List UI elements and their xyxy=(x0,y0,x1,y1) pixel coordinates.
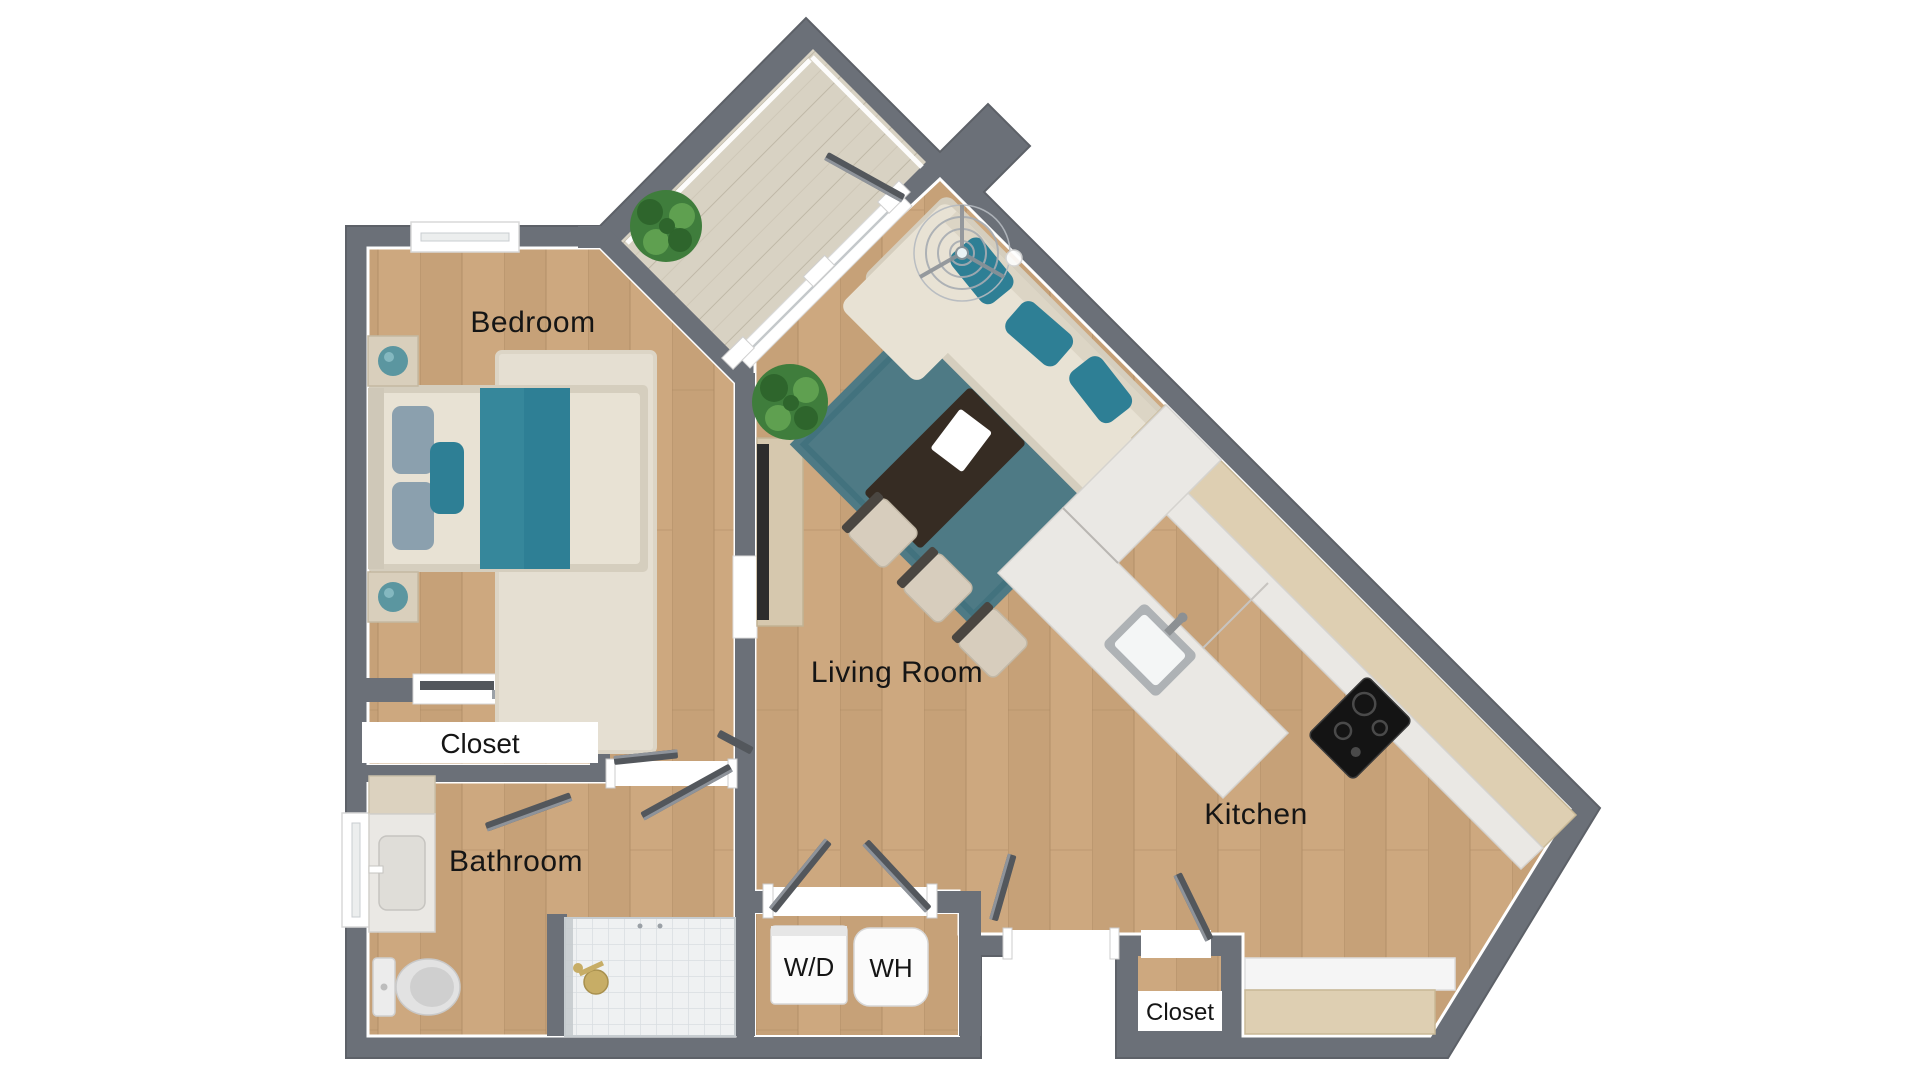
bathroom-vanity xyxy=(369,776,435,932)
tv-console xyxy=(757,438,803,626)
shower-glass xyxy=(565,918,573,1036)
bed xyxy=(368,385,648,572)
door-jamb xyxy=(606,759,615,788)
entry-closet-doorway xyxy=(1141,930,1211,958)
bedroom-window xyxy=(411,222,519,252)
bedroom-doorway xyxy=(733,556,757,638)
kitchen-back-counter xyxy=(1245,958,1455,1034)
lamp-icon xyxy=(378,346,408,376)
bed-runner-fold xyxy=(480,388,524,569)
bed-pillow xyxy=(392,406,434,474)
closet-bedroom-label: Closet xyxy=(440,728,520,759)
door-jamb xyxy=(927,884,937,918)
washer-dryer-label: W/D xyxy=(784,952,835,982)
door-jamb xyxy=(728,759,737,788)
shower-drain-fixture xyxy=(584,970,608,994)
closet-entry-label: Closet xyxy=(1146,999,1214,1026)
floor-plan: Bedroom Closet Bathroom Living Room Kitc… xyxy=(0,0,1920,1080)
plant-living-room xyxy=(752,364,828,440)
entry-doorway xyxy=(1008,930,1112,958)
bathroom-window xyxy=(342,813,370,927)
kitchen-label: Kitchen xyxy=(1204,798,1308,831)
water-heater-label: WH xyxy=(869,953,912,983)
utility-right-wall xyxy=(959,891,981,1036)
toilet xyxy=(373,958,460,1016)
vanity-sink xyxy=(379,836,425,910)
nightstand-bottom xyxy=(368,572,418,622)
bathroom-label: Bathroom xyxy=(449,845,583,878)
vanity-faucet xyxy=(369,866,383,873)
floor-plan-canvas: Bedroom Closet Bathroom Living Room Kitc… xyxy=(0,0,1920,1080)
tv xyxy=(757,444,769,620)
headboard xyxy=(368,388,384,569)
door-jamb xyxy=(1110,928,1119,959)
bed-pillow xyxy=(392,482,434,550)
door-jamb xyxy=(763,884,773,918)
plant-balcony xyxy=(630,190,702,262)
bedroom-east-wall-lower xyxy=(735,635,755,782)
door-jamb xyxy=(1003,928,1012,959)
bathroom-cabinet xyxy=(369,776,435,814)
lamp-icon xyxy=(378,582,408,612)
bathroom-east-wall xyxy=(735,782,755,1036)
bedroom-label: Bedroom xyxy=(470,306,595,339)
bed-accent-pillow xyxy=(430,442,464,514)
side-table xyxy=(1006,250,1022,266)
living-room-label: Living Room xyxy=(811,656,983,689)
shower xyxy=(547,914,735,1036)
nightstand-top xyxy=(368,336,418,386)
